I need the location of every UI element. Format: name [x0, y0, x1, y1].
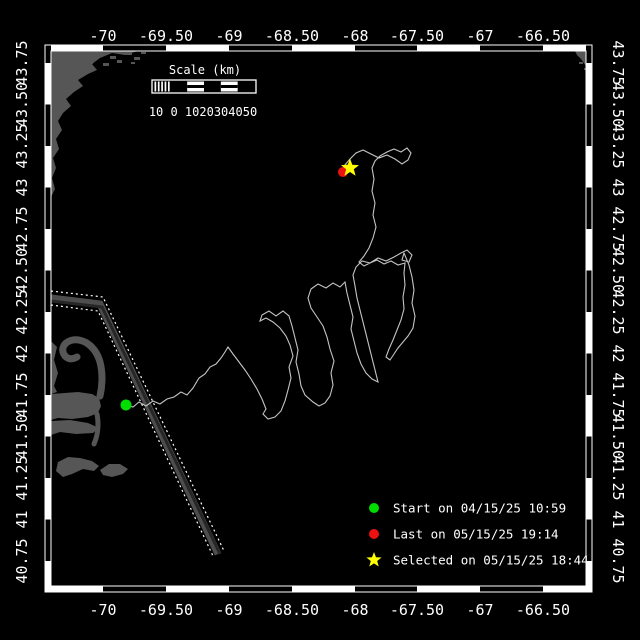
lat-tick-label: 41 [13, 510, 31, 528]
frame-segment [586, 45, 592, 63]
scale-bar-cells [152, 80, 256, 93]
lon-tick-label: -67 [466, 27, 493, 45]
lon-tick-label: -68 [341, 27, 368, 45]
legend-last-label: Last on 05/15/25 19:14 [393, 527, 559, 542]
land-speckle [134, 57, 140, 60]
lat-tick-label: 42.50 [13, 248, 31, 293]
lat-tick-label: 43.75 [13, 40, 31, 85]
frame-segment [586, 354, 592, 396]
lat-tick-label: 41.75 [13, 372, 31, 417]
lon-tick-label: -69 [215, 601, 242, 619]
frame-segment [45, 188, 51, 230]
frame-segment [229, 586, 292, 592]
lon-tick-label: -68 [341, 601, 368, 619]
frame-segment [45, 395, 51, 437]
lon-tick-label: -69.50 [139, 27, 193, 45]
scale-cell-hatch [161, 82, 163, 92]
vehicle-track-line[interactable] [126, 148, 415, 419]
start-position-marker[interactable] [121, 400, 132, 411]
track-markers [121, 159, 360, 411]
frame-segment [45, 520, 51, 562]
scale-cell-hatch [158, 82, 160, 92]
frame-segment [45, 437, 51, 479]
frame-segment [45, 63, 51, 105]
lat-tick-label: 40.75 [609, 538, 627, 583]
lon-tick-label: -67 [466, 601, 493, 619]
frame-segment [45, 45, 51, 63]
scale-cell-stripe [187, 85, 204, 88]
lat-tick-label: 43.75 [609, 40, 627, 85]
lon-tick-label: -66.50 [516, 601, 570, 619]
lat-tick-label: 42.25 [13, 289, 31, 334]
land-shape [63, 340, 102, 396]
frame-segment [480, 45, 543, 51]
frame-segment [45, 146, 51, 188]
frame-segment [45, 354, 51, 396]
lat-tick-label: 41.50 [609, 414, 627, 459]
lon-tick-label: -70 [89, 27, 116, 45]
frame-segment [355, 45, 417, 51]
frame-segment [45, 105, 51, 147]
lat-tick-label: 42.75 [609, 206, 627, 251]
frame-segment [45, 271, 51, 313]
legend-selected-label: Selected on 05/15/25 18:44 [393, 553, 589, 568]
frame-segment [586, 395, 592, 437]
land-speckle [66, 53, 72, 56]
frame-segment [166, 586, 229, 592]
legend-start-label: Start on 04/15/25 10:59 [393, 501, 566, 516]
land-speckle [95, 54, 102, 57]
frame-segment [166, 45, 229, 51]
legend-last-dot-icon [369, 529, 379, 539]
lat-tick-label: 41 [609, 510, 627, 528]
land-speckle [103, 63, 109, 66]
lon-tick-label: -69.50 [139, 601, 193, 619]
land-speckle [579, 62, 583, 64]
frame-segment [586, 105, 592, 147]
frame-segment [417, 586, 480, 592]
lat-tick-label: 42.25 [609, 289, 627, 334]
lon-tick-label: -67.50 [390, 27, 444, 45]
lat-tick-label: 42 [13, 344, 31, 362]
lat-tick-label: 43 [609, 178, 627, 196]
lat-tick-label: 43 [13, 178, 31, 196]
land-shape [100, 464, 128, 477]
track-map-canvas: -70-70-69.50-69.50-69-69-68.50-68.50-68-… [0, 0, 640, 640]
lon-tick-label: -68.50 [265, 601, 319, 619]
scale-bar-numbers: 10 0 1020304050 [149, 105, 257, 119]
frame-segment [45, 586, 103, 592]
lon-tick-label: -69 [215, 27, 242, 45]
lat-tick-label: 41.50 [13, 414, 31, 459]
frame-segment [543, 45, 592, 51]
frame-segment [292, 586, 355, 592]
lon-tick-label: -70 [89, 601, 116, 619]
frame-segment [355, 586, 417, 592]
lat-tick-label: 43.50 [13, 82, 31, 127]
frame-segment [45, 561, 51, 592]
scale-cell-hatch [155, 82, 157, 92]
land-shape [51, 392, 101, 420]
frame-segment [543, 586, 592, 592]
land-speckle [110, 56, 116, 59]
frame-segment [586, 188, 592, 230]
frame-segment [292, 45, 355, 51]
land-shape [51, 420, 99, 435]
legend: Start on 04/15/25 10:59 Last on 05/15/25… [366, 501, 588, 568]
frame-segment [103, 586, 166, 592]
scale-cell-hatch [165, 82, 167, 92]
frame-segment [229, 45, 292, 51]
land-shape [56, 457, 99, 477]
lat-tick-label: 43.25 [609, 123, 627, 168]
land-layer [51, 51, 587, 477]
land-speckle [70, 60, 74, 63]
land-speckle [131, 62, 135, 64]
scale-bar-title: Scale (km) [169, 63, 241, 77]
land-speckle [141, 52, 146, 54]
land-speckle [78, 57, 86, 60]
frame-segment [480, 586, 543, 592]
frame-segment [586, 437, 592, 479]
frame-segment [586, 271, 592, 313]
frame-segment [586, 312, 592, 354]
lat-tick-label: 43.25 [13, 123, 31, 168]
frame-segment [45, 45, 103, 51]
map-viewer-screen: -70-70-69.50-69.50-69-69-68.50-68.50-68-… [0, 0, 640, 640]
frame-segment [45, 312, 51, 354]
frame-segment [417, 45, 480, 51]
lat-tick-label: 43.50 [609, 82, 627, 127]
lat-tick-label: 41.25 [609, 455, 627, 500]
land-shape [51, 341, 58, 394]
lat-tick-label: 42.50 [609, 248, 627, 293]
lat-tick-label: 40.75 [13, 538, 31, 583]
frame-segment [45, 478, 51, 520]
frame-segment [45, 229, 51, 271]
lon-tick-label: -68.50 [265, 27, 319, 45]
land-shape [51, 51, 138, 197]
lon-tick-label: -66.50 [516, 27, 570, 45]
lon-tick-label: -67.50 [390, 601, 444, 619]
land-speckle [88, 61, 93, 64]
frame-segment [586, 478, 592, 520]
frame-segment [586, 146, 592, 188]
legend-start-dot-icon [369, 503, 379, 513]
frame-segment [103, 45, 166, 51]
lat-tick-label: 42.75 [13, 206, 31, 251]
frame-segment [586, 63, 592, 105]
scale-cell-stripe [221, 85, 238, 88]
scale-cell-hatch [168, 82, 170, 92]
lat-tick-label: 41.75 [609, 372, 627, 417]
land-speckle [117, 60, 122, 63]
lat-tick-label: 42 [609, 344, 627, 362]
land-speckle [124, 52, 132, 55]
frame-segment [586, 229, 592, 271]
lat-tick-label: 41.25 [13, 455, 31, 500]
scale-bar: Scale (km) 10 0 1020304050 [149, 63, 257, 119]
legend-selected-star-icon [366, 552, 381, 567]
